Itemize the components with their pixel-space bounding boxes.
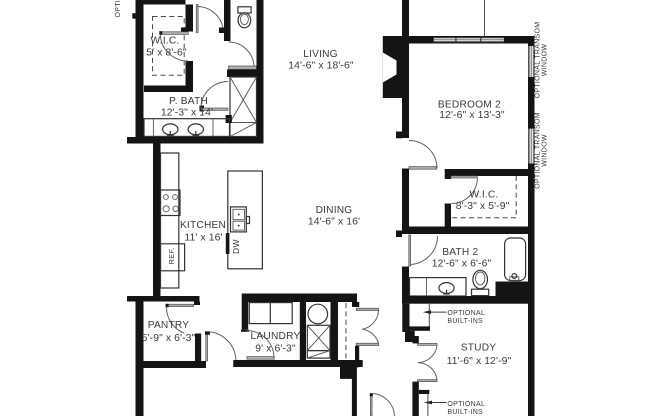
svg-text:DINING: DINING — [316, 205, 353, 216]
svg-text:BUILT-INS: BUILT-INS — [447, 409, 483, 416]
svg-text:OPTIONAL: OPTIONAL — [447, 401, 485, 408]
svg-text:8'-3" x 5'-9": 8'-3" x 5'-9" — [456, 201, 510, 212]
svg-text:P. BATH: P. BATH — [169, 96, 208, 107]
svg-text:OPTIONAL: OPTIONAL — [447, 310, 485, 317]
svg-text:11' x 16': 11' x 16' — [184, 233, 222, 244]
svg-text:LIVING: LIVING — [303, 49, 338, 60]
svg-text:PANTRY: PANTRY — [148, 320, 190, 331]
svg-text:11'-6" x 12'-9": 11'-6" x 12'-9" — [447, 356, 512, 367]
svg-text:KITCHEN: KITCHEN — [180, 220, 226, 231]
svg-text:12'-6" x 13'-3": 12'-6" x 13'-3" — [439, 110, 505, 121]
svg-text:OPTIONAL TRANSOM: OPTIONAL TRANSOM — [535, 112, 542, 189]
svg-text:WINDOW: WINDOW — [542, 134, 549, 167]
svg-text:14'-6" x 16': 14'-6" x 16' — [308, 217, 360, 228]
svg-text:OPTIONAL TRANSOM: OPTIONAL TRANSOM — [535, 22, 542, 99]
svg-text:BEDROOM 2: BEDROOM 2 — [438, 99, 501, 110]
svg-text:DW: DW — [231, 239, 241, 254]
svg-text:REF.: REF. — [167, 247, 176, 264]
svg-text:12'-3" x 14': 12'-3" x 14' — [161, 108, 213, 119]
svg-text:BUILT-INS: BUILT-INS — [447, 318, 483, 325]
svg-text:LAUNDRY: LAUNDRY — [251, 331, 301, 342]
svg-text:WINDOW: WINDOW — [542, 44, 549, 77]
svg-text:14'-6" x 18'-6": 14'-6" x 18'-6" — [288, 61, 354, 72]
svg-text:12'-6" x 6'-6": 12'-6" x 6'-6" — [432, 259, 492, 270]
svg-text:STUDY: STUDY — [461, 343, 497, 354]
svg-text:9' x 6'-3": 9' x 6'-3" — [255, 344, 296, 355]
svg-text:W.I.C.: W.I.C. — [470, 189, 499, 200]
svg-text:BATH 2: BATH 2 — [442, 247, 478, 258]
svg-text:5'-9" x 6'-3": 5'-9" x 6'-3" — [142, 333, 196, 344]
svg-text:OPTIONAL TRANSOM: OPTIONAL TRANSOM — [115, 0, 122, 18]
svg-text:W.I.C.: W.I.C. — [151, 36, 180, 47]
